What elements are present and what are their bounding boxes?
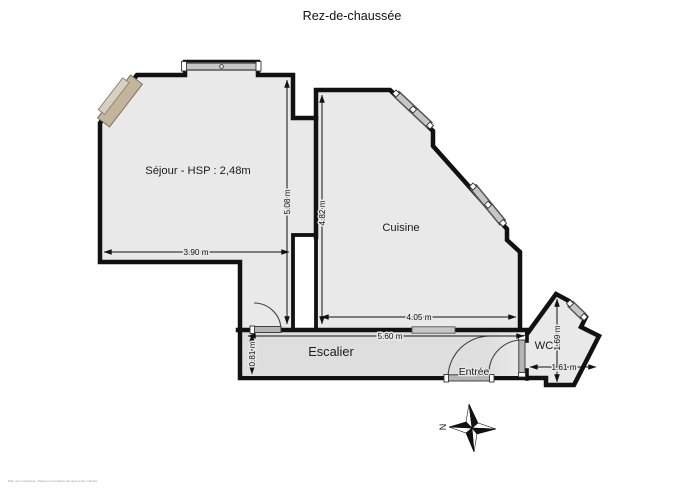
wc-label: WC xyxy=(535,340,554,352)
compass-north-label: N xyxy=(438,424,448,431)
stair-shaft xyxy=(293,235,316,330)
dim-sejour-height: 5.08 m xyxy=(283,189,292,214)
cuisine-label: Cuisine xyxy=(382,222,419,234)
dim-hall-length: 5.60 m xyxy=(377,332,402,341)
dim-wc-height: 1.69 m xyxy=(553,325,562,350)
escalier-label: Escalier xyxy=(308,344,354,359)
dim-wc-width: 1.61 m xyxy=(551,363,576,372)
floor-plan-page: Rez-de-chaussée xyxy=(0,0,700,495)
sejour-window xyxy=(182,62,262,72)
dim-cuisine-width: 4.05 m xyxy=(406,313,431,322)
compass-icon: N xyxy=(438,404,496,452)
floor-plan-canvas: Rez-de-chaussée xyxy=(0,0,700,495)
dim-cuisine-height: 4.82 m xyxy=(318,200,327,225)
sejour-label: Séjour - HSP : 2,48m xyxy=(145,165,251,177)
dim-sejour-width: 3.90 m xyxy=(183,248,208,257)
hall-wall-glazing xyxy=(412,327,455,333)
dim-hall-width: 0.81 m xyxy=(248,341,257,366)
entree-label: Entrée xyxy=(459,367,490,378)
page-title: Rez-de-chaussée xyxy=(303,9,402,23)
fine-print: Plan non contractuel - Mesures et surfac… xyxy=(8,479,97,483)
